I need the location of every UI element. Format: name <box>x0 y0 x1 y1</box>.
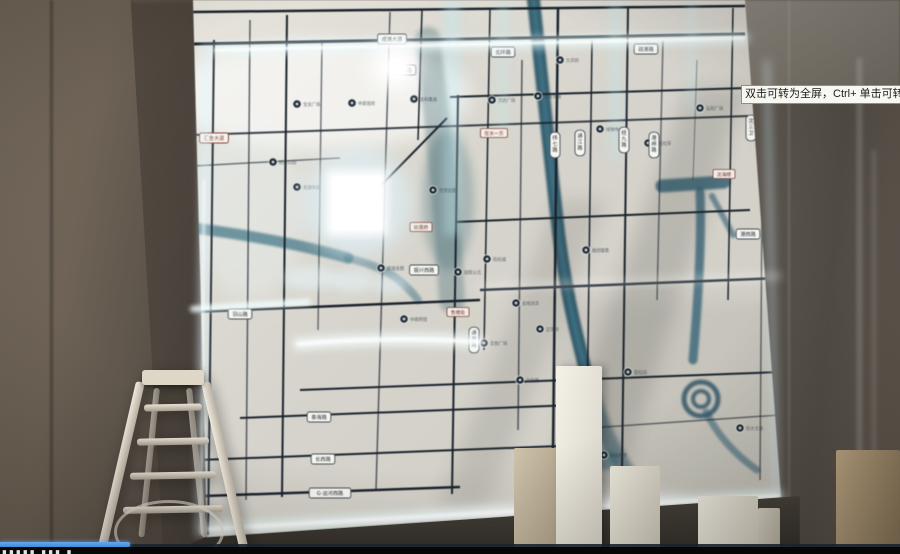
foreground-box <box>610 466 660 554</box>
poi-label: 建发悦城 <box>544 93 562 100</box>
poi-glyph <box>296 186 299 189</box>
road-plate-label: G·运河西路 <box>317 489 344 497</box>
poi-glyph <box>432 189 435 192</box>
poi-glyph <box>699 107 702 110</box>
poi-label: 九华府 <box>566 57 580 64</box>
poi-label: 旭辉公元 <box>464 269 482 276</box>
step-ladder <box>108 366 240 554</box>
road-plate-label: 长西路 <box>315 455 331 463</box>
poi-label: 融创御景 <box>592 247 610 254</box>
road-plate-label: 沈三卫 <box>748 117 753 137</box>
poi-label: 阳光城 <box>493 256 507 263</box>
poi-glyph <box>537 95 540 98</box>
poi-glyph <box>519 379 522 382</box>
poi-label: 招商公园 <box>279 159 296 166</box>
poi-glyph <box>380 267 383 270</box>
poi-glyph <box>457 271 460 274</box>
ladder-rung <box>144 403 202 411</box>
poi-label: 宝龙广场 <box>303 101 321 108</box>
project-label-text: 在水一方 <box>484 130 503 137</box>
foreground-box <box>514 448 558 554</box>
caption-strip: ▮▮▮▮▮ ▮▮▮ ▮ <box>0 547 900 554</box>
poi-label: 新城金郡 <box>387 265 405 272</box>
poi-label: 碧桂园 <box>634 369 647 376</box>
ladder-rung <box>130 471 216 479</box>
road-plate-label: 纬七路 <box>552 134 558 154</box>
road-plate-label: 通江路 <box>577 132 583 152</box>
project-label-text: 沈海楼 <box>717 171 732 178</box>
poi-glyph <box>403 318 406 321</box>
road-plate-label: 港西路 <box>740 230 756 238</box>
poi-label: 金地风华 <box>522 300 540 307</box>
poi-label: 吾悦广场 <box>490 340 508 347</box>
ladder-rung <box>137 437 209 445</box>
poi-label: 绿城桃李 <box>610 452 628 459</box>
poi-glyph <box>559 59 562 62</box>
project-label-text: 玖唐府 <box>414 224 429 231</box>
road-plate-label: 振兴西路 <box>414 266 436 274</box>
poi-glyph <box>351 102 354 105</box>
video-frame[interactable]: 宝龙广场中梁首府金科集美万达广场建发悦城九华府绿地中心保利拉菲弘阳广场招商公园龙… <box>0 0 900 554</box>
foreground-box <box>836 450 900 554</box>
road-plate-label: 疏港路 <box>638 45 654 53</box>
road-plate-label: 北环路 <box>495 48 511 56</box>
project-label-text: 售楼处 <box>451 309 466 316</box>
clipped-caption: ▮▮▮▮▮ ▮▮▮ ▮ <box>2 548 74 554</box>
poi-glyph <box>413 98 416 101</box>
poi-glyph <box>585 249 588 252</box>
poi-glyph <box>515 302 518 305</box>
poi-label: 恒大文旅 <box>746 425 764 432</box>
poi-glyph <box>599 128 602 131</box>
poi-label: 万达广场 <box>498 97 516 104</box>
poi-label: 中梁首府 <box>358 100 376 107</box>
foreground-pillar <box>556 366 602 554</box>
poi-glyph <box>296 103 299 106</box>
poi-glyph <box>539 328 542 331</box>
poi-glyph <box>486 258 489 261</box>
poi-label: 正荣府 <box>546 326 560 333</box>
road-plate-label: 羽山路 <box>232 310 248 318</box>
poi-glyph <box>491 99 494 102</box>
poi-glyph <box>272 161 275 164</box>
poi-glyph <box>739 427 742 430</box>
ladder-top-cap <box>142 370 204 385</box>
fullscreen-tooltip: 双击可转为全屏，Ctrl+ 单击可转为 <box>741 85 900 104</box>
road-plate-label: 经九路 <box>621 129 627 149</box>
poi-label: 金科集美 <box>420 96 438 103</box>
poi-glyph <box>603 454 606 457</box>
poi-label: 世茂云图 <box>439 187 456 194</box>
road-plate-label: 港闸路 <box>651 134 657 154</box>
road-plate-label: 泰海路 <box>311 413 327 421</box>
poi-label: 弘阳广场 <box>706 105 724 112</box>
poi-glyph <box>627 371 630 374</box>
project-site-glow <box>302 148 412 258</box>
poi-label: 海伦堡 <box>526 377 540 384</box>
poi-label: 中南熙悦 <box>410 316 428 323</box>
